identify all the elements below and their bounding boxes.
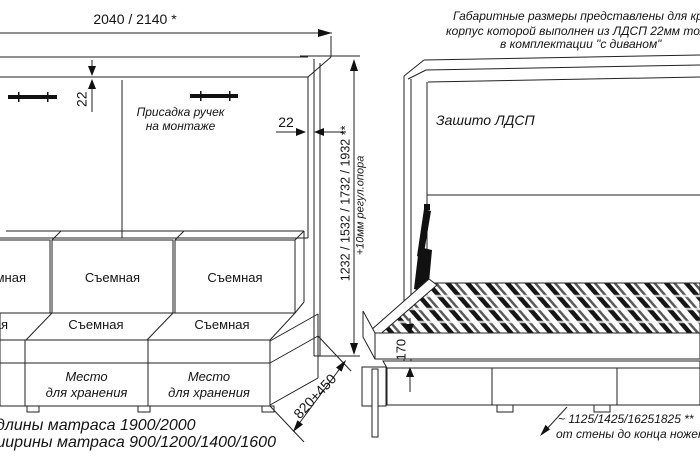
wall-bed-technical-drawing: Габаритные размеры представлены для кров… xyxy=(0,0,700,470)
back-cushion-label-3: Съемная xyxy=(175,270,295,285)
slatted-bed-base xyxy=(370,279,700,337)
overall-width-dimension-line xyxy=(0,29,332,57)
storage-label-2-line2: для хранения xyxy=(148,385,270,400)
wall-distance-note-line2: от стены до конца ножек xyxy=(556,427,700,441)
storage-label-2-line1: Место xyxy=(148,369,270,384)
top-thickness-dimension: 22 xyxy=(74,79,91,119)
cabinet-height-dimension: 1232 / 1532 / 1732 / 1932 ** xyxy=(339,113,354,293)
platform-height-dimension: 170 xyxy=(393,325,408,375)
wall-distance-note-line1: ~ 1125/1425/16251825 ** xyxy=(558,412,694,426)
seat-cushion-label-0: Съемная xyxy=(0,317,8,332)
door-handles xyxy=(8,91,238,102)
storage-label-1-line2: для хранения xyxy=(25,385,148,400)
seat-cushion-label-1: Съемная xyxy=(46,317,146,332)
side-thickness-dimension: 22 xyxy=(272,114,300,131)
top-note-line1: Габаритные размеры представлены для кров xyxy=(453,9,700,23)
overall-width-dimension: 2040 / 2140 * xyxy=(70,11,200,28)
back-cushion-label-1: Съемная xyxy=(0,270,26,285)
top-note-line3: в комплектации "с диваном" xyxy=(500,37,661,51)
footnote-mattress-width: ширины матраса 900/1200/1400/1600 xyxy=(0,434,276,453)
handle-mounting-note-line1: Присадка ручек xyxy=(128,105,233,119)
closed-panel-label: Зашито ЛДСП xyxy=(436,112,535,129)
storage-label-1-line1: Место xyxy=(25,369,148,384)
back-cushion-label-2: Съемная xyxy=(52,270,173,285)
seat-cushion-label-2: Съемная xyxy=(167,317,277,332)
adjustable-support-note: +10мм регул.опора xyxy=(355,140,368,270)
handle-mounting-note-line2: на монтаже xyxy=(128,119,233,133)
